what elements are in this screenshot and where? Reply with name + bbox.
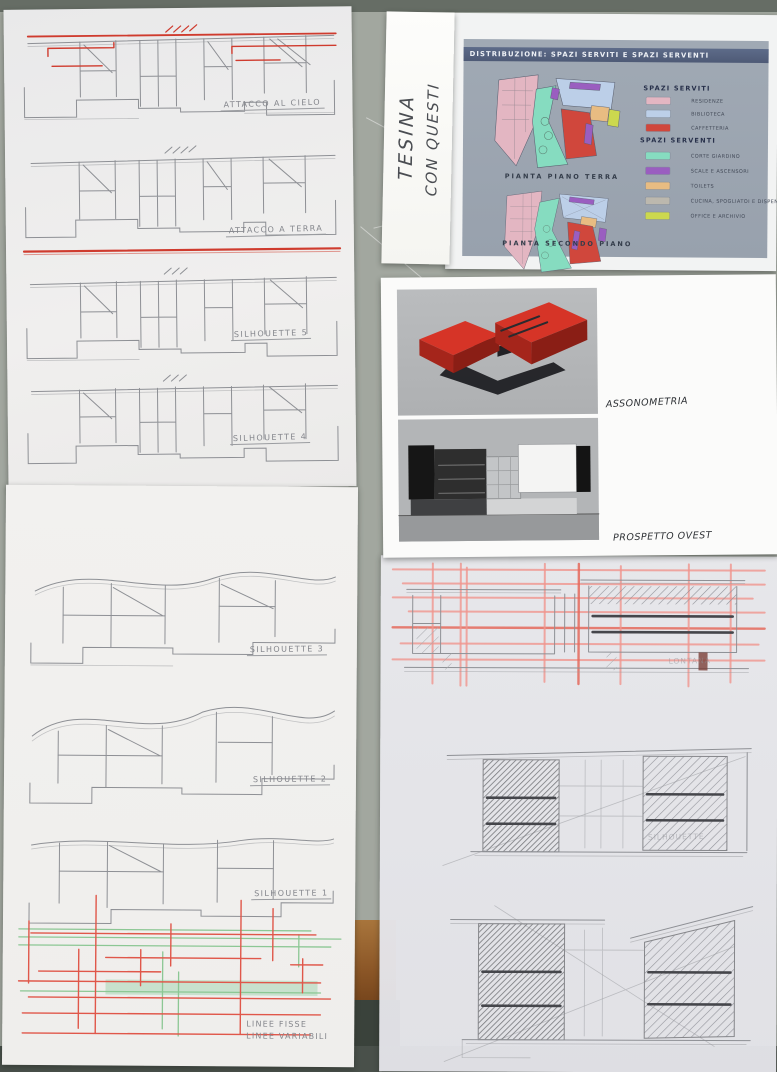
sketch-silhouette-4	[21, 368, 344, 479]
plan-piano-terra	[491, 69, 622, 170]
sticky-note: TESINA CON QUESTI	[381, 11, 454, 264]
sheet-tracing-elevations: LONTANA SILHOUETTE	[379, 555, 777, 1072]
legend-color-swatch	[646, 197, 670, 204]
legend-color-swatch	[646, 182, 670, 189]
sketch-attacco-a-terra	[19, 136, 342, 257]
legend-label: SCALE E ASCENSORI	[691, 169, 749, 175]
sketch-label: SILHOUETTE 2	[250, 774, 330, 786]
sketch-label: SILHOUETTE 5	[231, 328, 312, 341]
legend-label: OFFICE E ARCHIVIO	[690, 214, 745, 220]
west-elevation-label: PROSPETTO OVEST	[613, 530, 712, 544]
axonometry-label: ASSONOMETRIA	[606, 396, 689, 411]
board-title: DISTRIBUZIONE: SPAZI SERVITI E SPAZI SER…	[470, 50, 710, 60]
sketch-silhouette-2	[22, 681, 343, 811]
sketch-elevation-two-towers-2	[434, 885, 755, 1066]
legend-color-swatch	[646, 97, 670, 104]
tracing-sketch-label: LONTANA	[668, 656, 710, 666]
legend-served-title: SPAZI SERVITI	[643, 84, 710, 92]
sheet-silhouette-studies-bottom: SILHOUETTE 3 SILHOUETTE 2 SILHOUETTE 1	[2, 485, 358, 1067]
sticky-note-line1: TESINA	[391, 79, 422, 195]
plan-secondo-piano	[482, 185, 633, 274]
legend-label: BIBLIOTECA	[691, 112, 725, 118]
sheet-distribution-board: DISTRIBUZIONE: SPAZI SERVITI E SPAZI SER…	[445, 13, 777, 271]
sketch-silhouette-5	[20, 261, 343, 372]
legend-color-swatch	[646, 124, 670, 131]
sheet-renders: ASSONOMETRIA PROSPETTO OVEST	[381, 274, 777, 557]
sketch-label: SILHOUETTE 3	[247, 644, 327, 656]
diagram-label: LINEE FISSE LINEE VARIABILI	[246, 1018, 328, 1043]
sketch-elevation-two-towers	[435, 715, 756, 876]
board-header-bar: DISTRIBUZIONE: SPAZI SERVITI E SPAZI SER…	[464, 47, 769, 63]
sketch-elevation-red-grid	[392, 563, 764, 694]
legend-label: CAFFETTERIA	[691, 126, 729, 132]
diagram-label-line1: LINEE FISSE	[246, 1018, 328, 1031]
legend-label: CORTE GIARDINO	[691, 154, 740, 160]
red-axonometric-model	[397, 288, 598, 416]
sheet-silhouette-studies-top: ATTACCO AL CIELO ATTACCO A TERRA SILHOUE…	[3, 6, 356, 490]
legend-serving-title: SPAZI SERVENTI	[640, 136, 716, 145]
panel-west-elevation	[398, 418, 599, 542]
board-panel: DISTRIBUZIONE: SPAZI SERVITI E SPAZI SER…	[462, 39, 769, 258]
plan-caption-secondo: PIANTA SECONDO PIANO	[502, 239, 632, 248]
legend-color-swatch	[646, 110, 670, 117]
tracing-sketch-label: SILHOUETTE	[648, 832, 705, 842]
legend-color-swatch	[646, 167, 670, 174]
legend-color-swatch	[646, 152, 670, 159]
diagram-label-line2: LINEE VARIABILI	[246, 1030, 328, 1043]
sketch-label: SILHOUETTE 4	[230, 432, 311, 445]
panel-axonometry	[397, 288, 598, 416]
legend-label: RESIDENZE	[691, 99, 723, 105]
sticky-note-text: TESINA CON QUESTI	[391, 79, 444, 197]
legend-label: CUCINA, SPOGLIATOI E DISPENSA	[691, 199, 777, 206]
west-elevation-drawing	[398, 418, 599, 542]
plan-caption-terra: PIANTA PIANO TERRA	[505, 172, 619, 181]
sticky-note-line2: CON QUESTI	[420, 81, 445, 197]
legend-label: TOILETS	[691, 184, 714, 190]
sketch-attacco-al-cielo	[18, 18, 341, 131]
legend-color-swatch	[645, 212, 669, 219]
photo-of-desk-with-architecture-drawings: ATTACCO AL CIELO ATTACCO A TERRA SILHOUE…	[0, 0, 777, 1072]
sketch-silhouette-3	[23, 543, 344, 677]
